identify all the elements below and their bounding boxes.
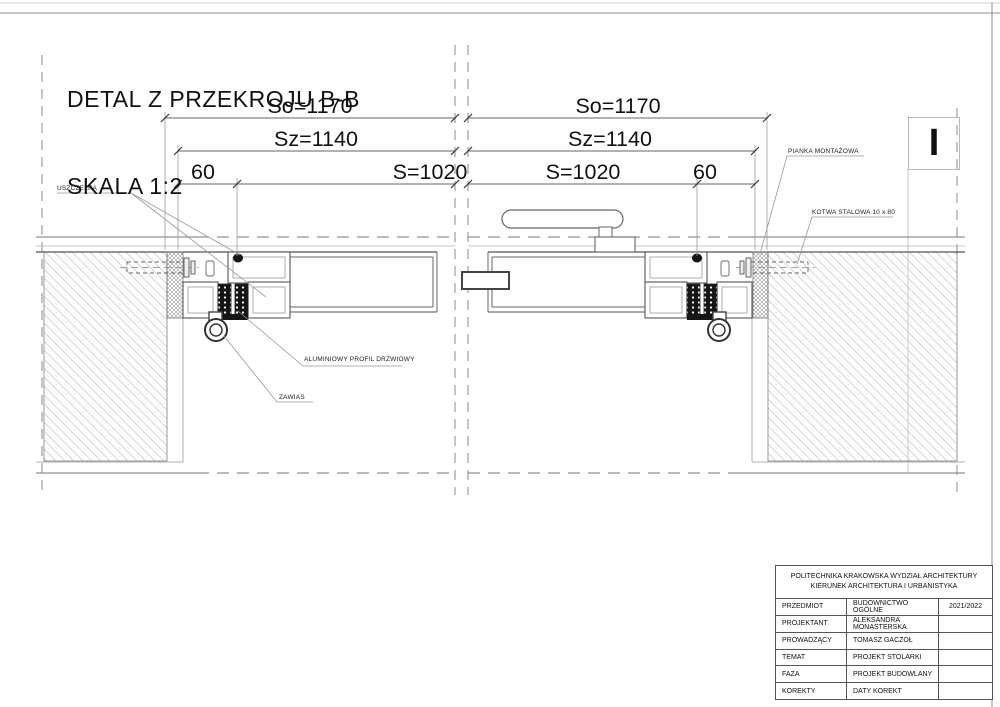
left-thermal-break-2 xyxy=(235,284,248,318)
tb-label-prowadzacy: PROWADZĄCY xyxy=(776,632,846,649)
tb-value-projektant: ALEKSANDRA MONASTERSKA xyxy=(846,615,938,632)
dim-so-left: So=1170 xyxy=(267,94,352,119)
tb-value-prowadzacy: TOMASZ GACZOŁ xyxy=(846,632,938,649)
anchor-right-head xyxy=(740,261,744,274)
anchor-right-plate xyxy=(746,258,751,277)
title-block-header-line2: KIERUNEK ARCHITEKTURA I URBANISTYKA xyxy=(811,583,958,591)
leader-pianka xyxy=(760,156,864,254)
drawing-sheet: DETAL Z PRZEKROJU B-B SKALA 1:2 So=1170 … xyxy=(0,0,1000,707)
tb-extra-faza xyxy=(938,665,992,682)
door-handle-stem xyxy=(599,227,612,238)
title-block-header: POLITECHNIKA KRAKOWSKA WYDZIAŁ ARCHITEKT… xyxy=(776,566,992,598)
dim-s-right: S=1020 xyxy=(546,160,621,185)
anchor-left-plate xyxy=(184,258,189,277)
tb-extra-korekty xyxy=(938,682,992,699)
hinge-right-inner xyxy=(713,324,725,336)
tb-value-faza: PROJEKT BUDOWLANY xyxy=(846,665,938,682)
label-zawias: ZAWIAS xyxy=(279,394,305,401)
label-profil: ALUMINIOWY PROFIL DRZWIOWY xyxy=(304,356,415,363)
label-pianka: PIANKA MONTAŻOWA xyxy=(788,148,859,155)
right-connector xyxy=(721,261,729,276)
tb-value-przedmiot: BUDOWNICTWO OGÓLNE xyxy=(846,598,938,615)
section-marker: I xyxy=(908,117,960,170)
tb-extra-prowadzacy xyxy=(938,632,992,649)
section-marker-label: I xyxy=(929,122,940,165)
tb-value-korekty: DATY KOREKT xyxy=(846,682,938,699)
right-wall-hatch xyxy=(768,252,957,461)
dim-so-right: So=1170 xyxy=(575,94,660,119)
tb-extra-temat xyxy=(938,649,992,666)
leader-zawias xyxy=(224,336,313,402)
title-block: POLITECHNIKA KRAKOWSKA WYDZIAŁ ARCHITEKT… xyxy=(775,565,993,700)
title-block-header-line1: POLITECHNIKA KRAKOWSKA WYDZIAŁ ARCHITEKT… xyxy=(791,573,978,581)
left-frame-assembly xyxy=(183,252,290,320)
left-thermal-cap xyxy=(220,314,248,320)
right-thermal-cap xyxy=(687,314,715,320)
left-connector xyxy=(206,261,214,276)
tb-extra-projektant xyxy=(938,615,992,632)
right-frame-assembly xyxy=(645,252,752,320)
tb-label-faza: FAZA xyxy=(776,665,846,682)
tb-label-temat: TEMAT xyxy=(776,649,846,666)
tb-value-temat: PROJEKT STOLARKI xyxy=(846,649,938,666)
right-thermal-break-1 xyxy=(687,284,700,318)
tb-extra-przedmiot: 2021/2022 xyxy=(938,598,992,615)
dim-60-left: 60 xyxy=(191,160,215,185)
tb-label-przedmiot: PRZEDMIOT xyxy=(776,598,846,615)
tb-label-korekty: KOREKTY xyxy=(776,682,846,699)
dim-s-left: S=1020 xyxy=(393,160,468,185)
label-kotwa: KOTWA STALOWA 10 x 80 xyxy=(812,209,895,216)
anchor-left-head xyxy=(191,261,195,274)
door-latch xyxy=(462,272,509,289)
dim-sz-left: Sz=1140 xyxy=(274,127,358,152)
dim-60-right: 60 xyxy=(693,160,717,185)
label-uszczelka: USZCZELKA xyxy=(57,185,97,192)
hinge-left-inner xyxy=(210,324,222,336)
dim-sz-right: Sz=1140 xyxy=(568,127,652,152)
door-handle-mount xyxy=(595,237,635,252)
tb-label-projektant: PROJEKTANT xyxy=(776,615,846,632)
left-wall-hatch xyxy=(44,252,167,461)
door-handle-bar xyxy=(502,210,623,228)
